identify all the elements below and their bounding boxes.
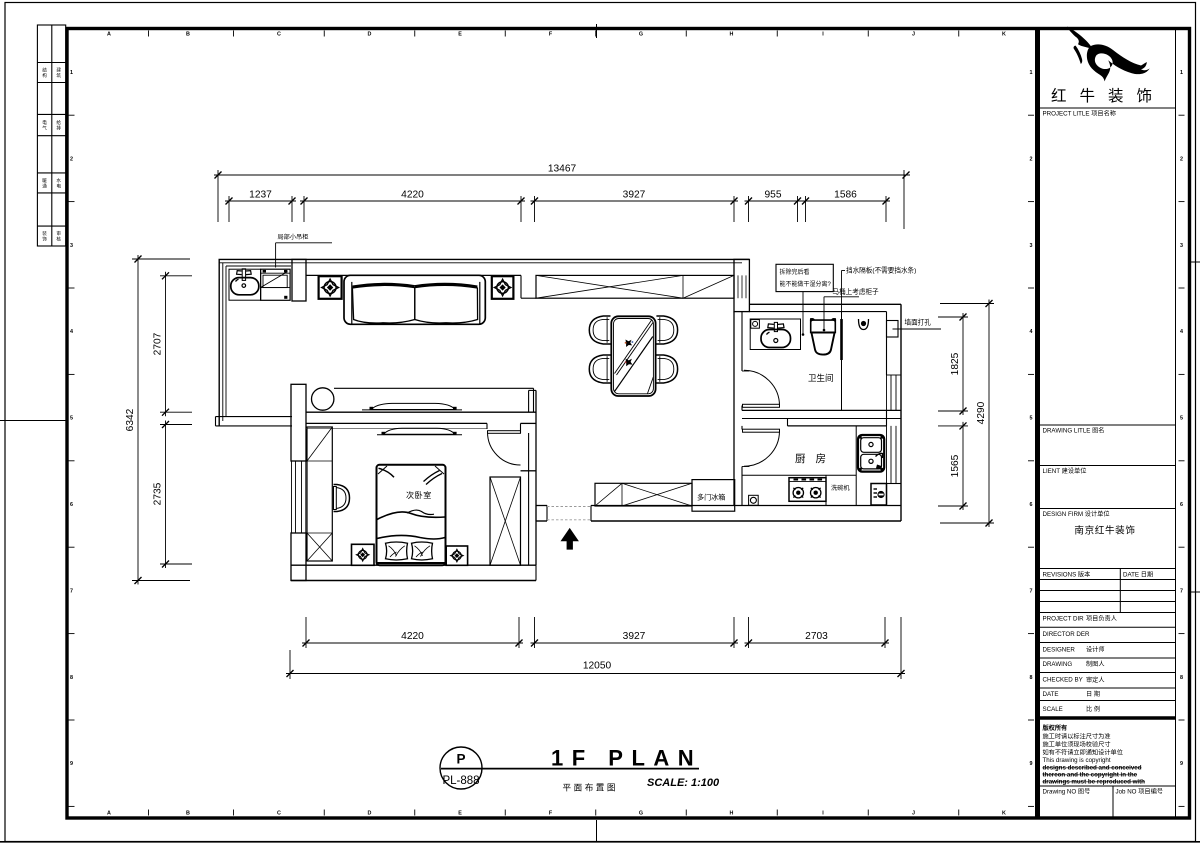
svg-text:2: 2	[70, 156, 73, 162]
svg-text:日 期: 日 期	[1086, 690, 1100, 698]
svg-text:墙面打孔: 墙面打孔	[905, 318, 932, 327]
svg-text:3: 3	[1180, 243, 1183, 249]
svg-text:DATE: DATE	[1043, 691, 1059, 698]
svg-text:3: 3	[70, 243, 73, 249]
svg-text:6: 6	[1180, 502, 1183, 508]
svg-text:南京红牛装饰: 南京红牛装饰	[1074, 525, 1135, 537]
svg-text:水: 水	[56, 177, 61, 183]
svg-text:电: 电	[56, 182, 61, 188]
svg-text:CHECKED BY: CHECKED BY	[1043, 677, 1083, 684]
svg-text:4: 4	[1030, 329, 1033, 335]
svg-text:D: D	[368, 811, 372, 817]
svg-text:DRAWING: DRAWING	[1043, 661, 1073, 668]
svg-text:饰: 饰	[42, 236, 47, 243]
svg-text:H: H	[730, 811, 734, 817]
svg-text:designs described and conceive: designs described and conceived	[1043, 765, 1142, 772]
svg-text:SCALE: SCALE	[1043, 706, 1063, 713]
svg-text:7: 7	[1180, 588, 1183, 594]
svg-text:thereon and the copyright in t: thereon and the copyright in the	[1043, 772, 1138, 779]
svg-text:This drawing is copyright: This drawing is copyright	[1043, 757, 1111, 764]
svg-text:DESIGN FIRM 设计单位: DESIGN FIRM 设计单位	[1043, 510, 1110, 518]
svg-text:1: 1	[1030, 70, 1033, 76]
svg-text:1: 1	[1180, 70, 1183, 76]
svg-text:挡水隔板(不需要挡水条): 挡水隔板(不需要挡水条)	[846, 266, 916, 275]
svg-text:项目负责人: 项目负责人	[1086, 615, 1117, 623]
svg-text:J: J	[912, 32, 915, 38]
svg-text:7: 7	[1030, 588, 1033, 594]
svg-text:1825: 1825	[950, 352, 961, 375]
svg-text:筑: 筑	[56, 72, 61, 79]
svg-text:红牛装饰: 红牛装饰	[1051, 87, 1165, 105]
svg-text:4: 4	[1180, 329, 1183, 335]
svg-text:8: 8	[70, 675, 73, 681]
svg-text:B: B	[186, 32, 190, 38]
svg-text:4290: 4290	[976, 401, 987, 424]
svg-text:气: 气	[42, 125, 47, 131]
svg-text:设计师: 设计师	[1086, 646, 1105, 654]
svg-text:3927: 3927	[623, 631, 646, 642]
svg-text:LIENT 建设单位: LIENT 建设单位	[1043, 467, 1087, 475]
svg-text:如有不符请立即通知设计单位: 如有不符请立即通知设计单位	[1043, 749, 1123, 757]
svg-text:7: 7	[70, 588, 73, 594]
svg-text:4220: 4220	[401, 631, 424, 642]
svg-text:电: 电	[42, 119, 47, 125]
svg-text:4: 4	[70, 329, 73, 335]
svg-text:3927: 3927	[623, 190, 646, 201]
svg-text:施工单位须现场校验尺寸: 施工单位须现场校验尺寸	[1043, 741, 1111, 749]
svg-text:DRAWING LITLE 图名: DRAWING LITLE 图名	[1043, 427, 1105, 435]
svg-text:PL-888: PL-888	[442, 775, 479, 787]
svg-text:Job NO 项目编号: Job NO 项目编号	[1116, 788, 1163, 796]
svg-text:H: H	[730, 32, 734, 38]
svg-text:卫生间: 卫生间	[808, 373, 834, 383]
svg-text:K: K	[1002, 32, 1006, 38]
svg-text:13467: 13467	[548, 164, 577, 175]
svg-text:A: A	[107, 32, 111, 38]
svg-text:9: 9	[1030, 761, 1033, 767]
svg-text:拆除完后看: 拆除完后看	[780, 268, 810, 276]
svg-text:955: 955	[765, 190, 782, 201]
svg-text:REVISIONS 版本: REVISIONS 版本	[1043, 571, 1091, 579]
svg-text:1: 1	[70, 70, 73, 76]
svg-text:J: J	[912, 811, 915, 817]
svg-text:比 例: 比 例	[1086, 705, 1100, 713]
svg-text:1237: 1237	[249, 190, 272, 201]
svg-text:A: A	[107, 811, 111, 817]
svg-text:DATE 日期: DATE 日期	[1123, 571, 1153, 579]
svg-text:施工时请以标注尺寸为准: 施工时请以标注尺寸为准	[1043, 733, 1111, 741]
svg-text:1F PLAN: 1F PLAN	[551, 746, 702, 771]
svg-text:2735: 2735	[153, 482, 164, 505]
svg-text:PROJECT LITLE 项目名称: PROJECT LITLE 项目名称	[1043, 110, 1116, 118]
svg-text:B: B	[186, 811, 190, 817]
svg-text:D: D	[368, 32, 372, 38]
svg-text:马桶上考虑柜子: 马桶上考虑柜子	[833, 287, 880, 296]
svg-text:次卧室: 次卧室	[406, 490, 432, 500]
svg-text:K: K	[1002, 811, 1006, 817]
svg-text:洗碗机: 洗碗机	[831, 484, 850, 492]
svg-text:构: 构	[42, 72, 47, 79]
svg-text:G: G	[639, 32, 643, 38]
svg-text:6: 6	[1030, 502, 1033, 508]
svg-text:5: 5	[1030, 416, 1033, 422]
svg-text:2: 2	[1030, 156, 1033, 162]
svg-text:12050: 12050	[583, 661, 612, 672]
svg-text:5: 5	[1180, 416, 1183, 422]
svg-text:2703: 2703	[805, 631, 828, 642]
svg-text:P: P	[456, 752, 465, 767]
svg-text:2: 2	[1180, 156, 1183, 162]
svg-text:局部小吊柜: 局部小吊柜	[278, 233, 309, 241]
svg-text:G: G	[639, 811, 643, 817]
svg-text:9: 9	[1180, 761, 1183, 767]
svg-text:排: 排	[56, 125, 61, 132]
svg-text:DESIGNER: DESIGNER	[1043, 647, 1076, 654]
svg-text:通: 通	[42, 182, 47, 189]
svg-text:3: 3	[1030, 243, 1033, 249]
svg-text:4220: 4220	[401, 190, 424, 201]
svg-text:多门冰箱: 多门冰箱	[697, 493, 725, 502]
svg-text:6342: 6342	[125, 408, 136, 431]
svg-text:9: 9	[70, 761, 73, 767]
svg-text:8: 8	[1180, 675, 1183, 681]
svg-text:DIRECTOR DER: DIRECTOR DER	[1043, 631, 1091, 638]
svg-text:Drawing NO 图号: Drawing NO 图号	[1043, 789, 1091, 796]
svg-text:版权所有: 版权所有	[1042, 724, 1068, 732]
svg-text:1586: 1586	[834, 190, 857, 201]
svg-text:PROJECT DIR: PROJECT DIR	[1043, 616, 1085, 623]
svg-text:C: C	[277, 811, 281, 817]
svg-text:8: 8	[1030, 675, 1033, 681]
svg-text:厨房: 厨房	[795, 452, 836, 465]
svg-text:2707: 2707	[153, 332, 164, 355]
svg-text:1565: 1565	[950, 454, 961, 477]
svg-text:制图人: 制图人	[1086, 660, 1105, 668]
svg-text:核: 核	[56, 236, 61, 243]
svg-text:SCALE: 1:100: SCALE: 1:100	[647, 777, 720, 789]
svg-text:C: C	[277, 32, 281, 38]
svg-text:6: 6	[70, 502, 73, 508]
svg-text:drawings must be reproduced wi: drawings must be reproduced with	[1043, 779, 1146, 786]
svg-text:E: E	[458, 32, 462, 38]
svg-text:E: E	[458, 811, 462, 817]
svg-text:平面布置图: 平面布置图	[563, 782, 618, 793]
svg-text:审定人: 审定人	[1086, 676, 1105, 684]
svg-text:5: 5	[70, 416, 73, 422]
svg-text:能不能做干湿分离?: 能不能做干湿分离?	[780, 280, 832, 288]
